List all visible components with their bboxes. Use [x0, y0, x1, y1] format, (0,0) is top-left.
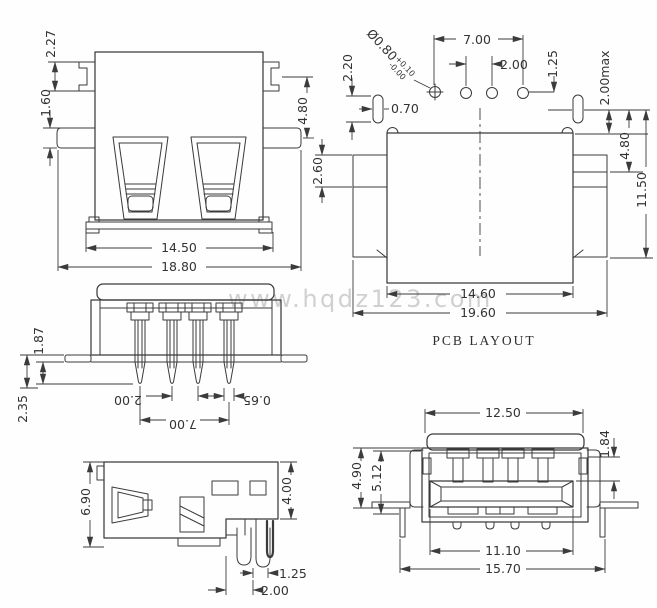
front-right-strip [600, 502, 638, 508]
dim-label-contact: 1.84 [597, 430, 612, 458]
dim-label-pin-len2: 2.35 [15, 395, 30, 423]
pcb-left-slot [373, 95, 383, 123]
dim-label-total-width: 18.80 [161, 259, 197, 274]
dim-label-depth1: 4.80 [617, 132, 632, 160]
front-tongue [430, 481, 573, 507]
pcb-hole-2 [461, 88, 472, 99]
dim-label-offset: 1.25 [545, 50, 560, 78]
left-slot-outer [113, 137, 168, 219]
side-foot [178, 538, 220, 546]
rear-view: 2.27 1.60 4.80 14.50 18.80 [38, 30, 314, 274]
front-tongue-inner [441, 487, 562, 501]
technical-drawing: www.hqdz123.com 2.27 1.60 [0, 0, 657, 608]
dim-label-slot-height: 2.20 [340, 54, 355, 82]
usb-connector-drawing-sheet: www.hqdz123.com 2.27 1.60 [0, 0, 657, 608]
dim-label-standoff-max: 2.00max [597, 50, 612, 105]
front-left-wing [410, 450, 423, 507]
pcb-right-notch [573, 155, 607, 257]
dim-label-tab-height: 1.60 [38, 89, 53, 117]
dim-label-front-h2: 5.12 [369, 464, 384, 492]
front-right-leg [600, 508, 605, 537]
dim-label-pin-width: 0.65 [243, 393, 271, 408]
top-right-tab [281, 355, 307, 362]
side-window-1 [212, 481, 238, 495]
side-pin-a [237, 528, 251, 565]
top-pins [127, 303, 242, 384]
dim-label-ear-height: 2.27 [43, 30, 58, 58]
bottom-flange [86, 222, 272, 229]
front-left-wing-slot [423, 458, 431, 474]
right-slot-inner [197, 143, 240, 212]
side-hatch-block [180, 497, 204, 532]
rear-right-tab [263, 128, 301, 148]
rear-left-ear [79, 62, 95, 91]
pcb-hole-3 [487, 88, 498, 99]
front-contacts [447, 449, 554, 482]
dim-label-side-height: 4.80 [295, 97, 310, 125]
left-slot-contact [128, 196, 153, 211]
side-latch-inner [118, 492, 143, 518]
dim-label-side-pin-pitch: 2.00 [261, 583, 289, 598]
top-left-tab [65, 355, 91, 362]
pcb-hole-4 [518, 88, 529, 99]
dim-label-outer-width: 19.60 [460, 305, 496, 320]
dim-label-side-height: 6.90 [78, 488, 93, 516]
dim-label-top-pin-span: 7.00 [169, 417, 197, 432]
dim-label-front-h1: 4.90 [349, 462, 364, 490]
right-slot-outer [191, 137, 246, 219]
pcb-left-notch [353, 155, 387, 257]
side-front-lip [97, 466, 104, 480]
dim-label-inner-width: 14.60 [460, 286, 496, 301]
dim-label-pin-len1: 1.87 [31, 327, 46, 355]
watermark-text: www.hqdz123.com [228, 285, 493, 313]
front-body [422, 448, 588, 522]
hole-dia-callout: Ø0.80 +0.10 -0.00 [361, 26, 418, 85]
pcb-right-slot [573, 95, 583, 123]
dim-label-depth2: 11.50 [634, 172, 649, 208]
front-right-wing-slot [579, 458, 587, 474]
front-left-leg [400, 508, 405, 537]
dim-label-flange-width: 14.50 [161, 240, 197, 255]
dim-label-pin-pitch: 2.00 [500, 57, 528, 72]
front-view: 12.50 1.84 4.90 5.12 11.10 15.70 [349, 405, 638, 576]
dim-label-notch: 2.60 [310, 157, 325, 185]
side-body-outline [104, 462, 278, 538]
rear-left-tab [57, 128, 95, 148]
dim-label-cap-width: 12.50 [485, 405, 521, 420]
left-slot-inner [119, 143, 162, 212]
front-left-strip [372, 502, 410, 508]
dim-label-pin-span: 7.00 [463, 32, 491, 47]
dim-label-slot-width: 0.70 [391, 101, 419, 116]
dim-label-top-pin-pitch: 2.00 [114, 393, 142, 408]
side-view: 6.90 4.00 1.25 2.00 [78, 462, 307, 598]
dim-label-side-body: 4.00 [279, 477, 294, 505]
pcb-corner-bump-left [387, 128, 398, 134]
dim-label-tongue-width: 11.10 [485, 543, 521, 558]
pcb-layout-caption: PCB LAYOUT [432, 333, 535, 348]
dim-label-side-pin-offset: 1.25 [279, 566, 307, 581]
side-window-2 [250, 481, 266, 495]
pcb-corner-bump-right [562, 128, 573, 134]
rear-right-ear [263, 62, 279, 91]
dim-label-leg-span: 15.70 [485, 561, 521, 576]
right-slot-contact [206, 196, 231, 211]
